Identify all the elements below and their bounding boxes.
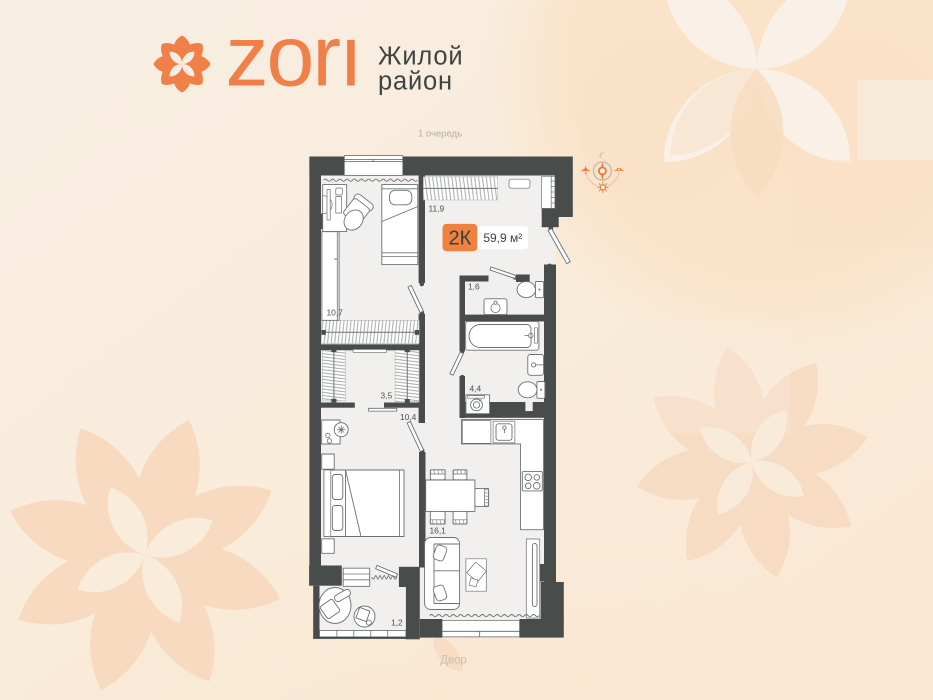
svg-text:2К: 2К — [449, 228, 472, 250]
svg-text:4,4: 4,4 — [470, 384, 482, 394]
svg-text:3,5: 3,5 — [381, 391, 393, 401]
svg-text:район: район — [378, 68, 453, 96]
svg-text:1,2: 1,2 — [391, 618, 403, 628]
svg-text:16,1: 16,1 — [430, 526, 447, 536]
svg-text:1 очередь: 1 очередь — [418, 129, 462, 140]
svg-text:10,4: 10,4 — [400, 412, 417, 422]
svg-text:10,7: 10,7 — [327, 308, 344, 318]
svg-text:59,9 м²: 59,9 м² — [483, 231, 522, 245]
svg-text:zorı: zorı — [226, 9, 361, 105]
svg-text:11,9: 11,9 — [429, 204, 445, 214]
svg-text:Жилой: Жилой — [378, 43, 463, 71]
svg-text:Двор: Двор — [440, 655, 467, 667]
svg-text:1,6: 1,6 — [468, 282, 480, 292]
